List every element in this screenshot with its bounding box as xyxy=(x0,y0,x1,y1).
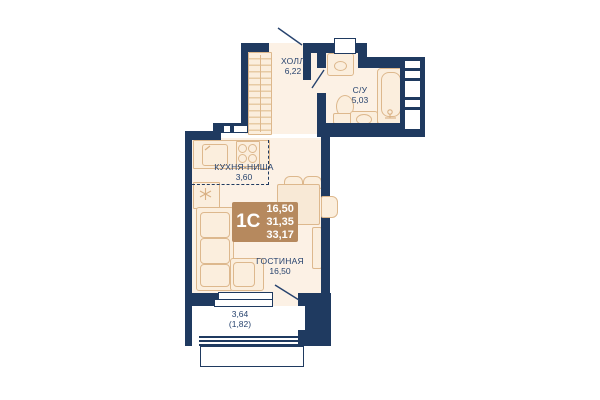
faucet-icon xyxy=(205,146,210,150)
room-label-kitchen: КУХНЯ-НИША 3,60 xyxy=(206,163,282,183)
room-area: 6,22 xyxy=(263,67,323,77)
room-label-hall: ХОЛЛ 6,22 xyxy=(263,57,323,77)
room-label-living: ГОСТИНАЯ 16,50 xyxy=(240,257,320,277)
snowflake-icon xyxy=(200,188,211,200)
door-swing-line xyxy=(275,285,299,300)
room-area: 16,50 xyxy=(240,267,320,277)
room-area-secondary: (1,82) xyxy=(210,320,270,330)
unit-area-full: 33,17 xyxy=(266,229,294,242)
room-area: 3,60 xyxy=(206,173,282,183)
door-swing-line xyxy=(278,28,302,45)
unit-info-badge: 1С 16,50 31,35 33,17 xyxy=(232,202,298,242)
room-area: 5,03 xyxy=(335,96,385,106)
unit-area-living: 16,50 xyxy=(266,203,294,216)
unit-area-total: 31,35 xyxy=(266,216,294,229)
room-label-bathroom: С/У 5,03 xyxy=(335,86,385,106)
room-label-balcony: 3,64 (1,82) xyxy=(210,310,270,330)
unit-areas: 16,50 31,35 33,17 xyxy=(266,203,294,242)
faucet-icon xyxy=(385,110,396,118)
floor-plan: ХОЛЛ 6,22 С/У 5,03 КУХНЯ-НИША 3,60 ГОСТИ… xyxy=(0,0,600,400)
unit-type-label: 1С xyxy=(236,211,260,233)
